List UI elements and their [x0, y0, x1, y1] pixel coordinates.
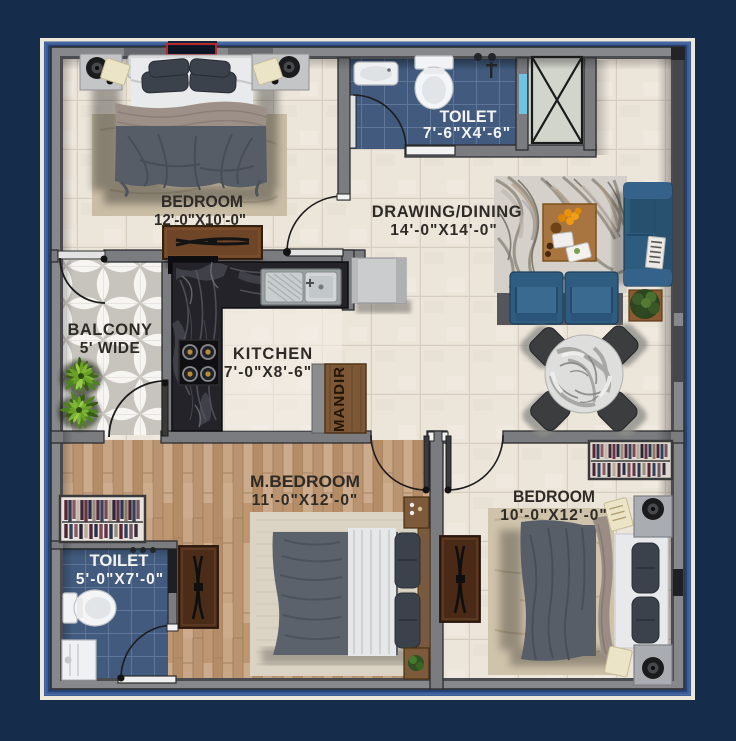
svg-text:BEDROOM: BEDROOM [161, 193, 243, 211]
svg-text:DRAWING/DINING: DRAWING/DINING [372, 203, 522, 221]
svg-text:MANDIR: MANDIR [331, 366, 348, 432]
svg-text:12'-0"X10'-0": 12'-0"X10'-0" [154, 212, 246, 229]
svg-text:7'-0"X8'-6": 7'-0"X8'-6" [224, 364, 312, 381]
svg-text:7'-6"X4'-6": 7'-6"X4'-6" [423, 125, 511, 142]
svg-text:14'-0"X14'-0": 14'-0"X14'-0" [390, 222, 497, 239]
svg-text:5'-0"X7'-0": 5'-0"X7'-0" [76, 571, 164, 588]
svg-text:TOILET: TOILET [90, 552, 149, 570]
svg-text:M.BEDROOM: M.BEDROOM [250, 473, 360, 491]
svg-text:11'-0"X12'-0": 11'-0"X12'-0" [252, 492, 359, 509]
svg-text:5' WIDE: 5' WIDE [80, 340, 141, 357]
svg-text:TOILET: TOILET [440, 108, 497, 126]
svg-text:BEDROOM: BEDROOM [513, 488, 595, 506]
svg-text:KITCHEN: KITCHEN [233, 345, 313, 363]
svg-text:10'-0"X12'-0": 10'-0"X12'-0" [500, 507, 607, 524]
svg-text:BALCONY: BALCONY [67, 321, 152, 339]
